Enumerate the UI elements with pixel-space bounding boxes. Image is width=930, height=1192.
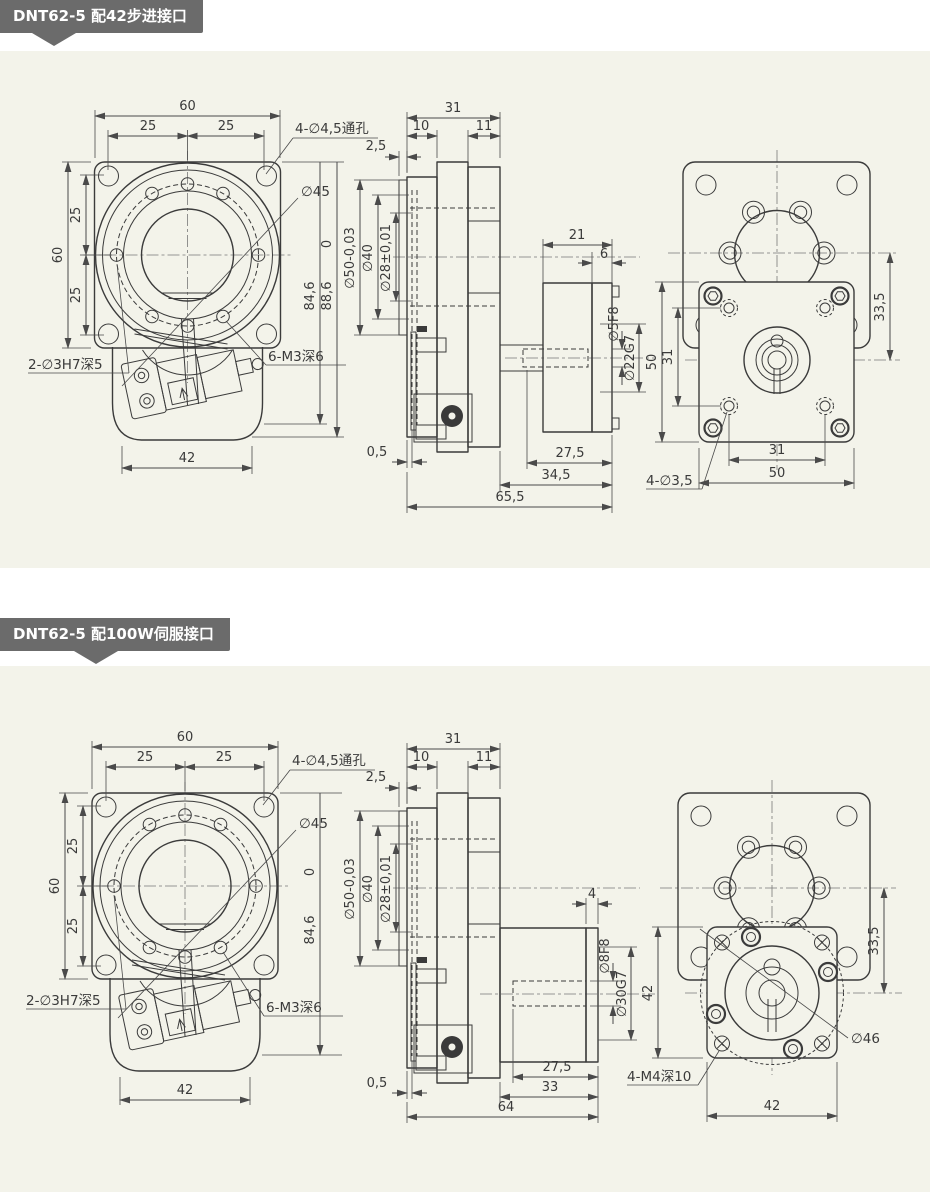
dim-front-width-left: 25 — [137, 750, 154, 765]
stepper-front-view: 60 25 25 60 25 25 42 0 84,6 88,6 4-∅4,5通… — [28, 99, 378, 474]
dim-ordinate-zero: 0 — [320, 240, 335, 248]
dim-shaft-diameter: ∅8F8 — [598, 938, 613, 973]
stepper-side-view: 31 10 11 2,5 ∅50-0,03 ∅40 ∅28±0,01 21 6 … — [343, 101, 655, 513]
dim-mid-diameter: ∅40 — [361, 244, 376, 272]
label-through-holes: 4-∅4,5通孔 — [295, 121, 369, 137]
stepper-drawing-panel: 60 25 25 60 25 25 42 0 84,6 88,6 4-∅4,5通… — [0, 51, 930, 568]
dim-plate-height: 42 — [641, 985, 656, 1002]
dim-motor-cap: 6 — [600, 247, 608, 262]
dim-pilot-diameter: ∅50-0,03 — [343, 858, 358, 920]
dim-ordinate-zero: 0 — [303, 868, 318, 876]
servo-drawing-panel: 60 25 25 60 25 25 42 0 84,6 4-∅4,5通孔 ∅45… — [0, 666, 930, 1192]
dim-spigot-diameter: ∅22G7 — [623, 335, 638, 381]
section-header-stepper: DNT62-5 配42步进接口 — [0, 0, 203, 33]
dim-plate-width: 50 — [769, 466, 786, 481]
servo-drawing: 60 25 25 60 25 25 42 0 84,6 4-∅4,5通孔 ∅45… — [0, 666, 930, 1192]
dim-side-width: 31 — [445, 732, 462, 747]
dim-side-block: 11 — [476, 119, 493, 134]
encoder-assembly — [411, 957, 472, 1073]
dim-length-b: 33 — [542, 1080, 559, 1095]
section-title: DNT62-5 配100W伺服接口 — [13, 625, 214, 643]
dim-side-flange: 10 — [413, 750, 430, 765]
dim-spigot-diameter: ∅30G7 — [615, 971, 630, 1017]
dim-bore-diameter: ∅28±0,01 — [379, 855, 394, 923]
label-motor-holes: 4-∅3,5 — [646, 473, 693, 489]
label-tapped-holes: 6-M3深6 — [268, 349, 324, 365]
dim-mid-diameter: ∅40 — [361, 875, 376, 903]
encoder-assembly — [411, 326, 472, 442]
dim-hole-pitch-v: 31 — [661, 349, 676, 366]
dim-front-bottom-width: 42 — [177, 1083, 194, 1098]
dim-side-lip-bottom: 0,5 — [367, 1076, 388, 1091]
dim-plate-height: 50 — [645, 354, 660, 371]
servo-rear-view: 33,5 42 42 4-M4深10 ∅46 — [627, 780, 902, 1122]
dim-side-lip: 2,5 — [366, 139, 387, 154]
dim-length-a: 27,5 — [556, 446, 585, 461]
label-pin-holes: 2-∅3H7深5 — [26, 993, 101, 1009]
servo-side-view: 31 10 11 2,5 ∅50-0,03 ∅40 ∅28±0,01 4 ∅8F… — [343, 732, 655, 1123]
label-race-diameter: ∅45 — [301, 184, 330, 200]
stepper-drawing: 60 25 25 60 25 25 42 0 84,6 88,6 4-∅4,5通… — [0, 51, 930, 568]
label-motor-screws: 4-M4深10 — [627, 1069, 691, 1085]
dim-front-bottom-width: 42 — [179, 451, 196, 466]
dim-bore-diameter: ∅28±0,01 — [379, 224, 394, 292]
dim-front-width: 60 — [179, 99, 196, 114]
dim-length-a: 27,5 — [543, 1060, 572, 1075]
stepper-rear-view: 33,5 50 31 31 50 4-∅3,5 — [645, 150, 900, 489]
dim-motor-length: 21 — [569, 228, 586, 243]
dim-front-height: 60 — [48, 878, 63, 895]
label-through-holes: 4-∅4,5通孔 — [292, 753, 366, 769]
dim-front-height-upper: 25 — [66, 838, 81, 855]
dim-cap-step: 4 — [588, 887, 596, 902]
dim-front-total-height-a: 84,6 — [303, 282, 318, 311]
dim-length-total: 64 — [498, 1100, 515, 1115]
dim-axis-offset: 33,5 — [867, 927, 882, 956]
dim-plate-width: 42 — [764, 1099, 781, 1114]
dim-front-height: 60 — [51, 247, 66, 264]
dim-front-width-left: 25 — [140, 119, 157, 134]
dim-hole-pitch-h: 31 — [769, 443, 786, 458]
dim-length-b: 34,5 — [542, 468, 571, 483]
dim-front-total-height: 84,6 — [303, 916, 318, 945]
section-title: DNT62-5 配42步进接口 — [13, 7, 187, 25]
dim-front-width-right: 25 — [216, 750, 233, 765]
servo-front-view: 60 25 25 60 25 25 42 0 84,6 4-∅4,5通孔 ∅45… — [26, 730, 375, 1105]
dim-side-lip-bottom: 0,5 — [367, 445, 388, 460]
label-pin-holes: 2-∅3H7深5 — [28, 357, 103, 373]
dim-front-width: 60 — [177, 730, 194, 745]
dim-front-height-lower: 25 — [66, 918, 81, 935]
dim-front-height-lower: 25 — [69, 287, 84, 304]
dim-front-width-right: 25 — [218, 119, 235, 134]
dim-pilot-diameter: ∅50-0,03 — [343, 227, 358, 289]
label-race-diameter: ∅45 — [299, 816, 328, 832]
dim-side-width: 31 — [445, 101, 462, 116]
dim-length-total: 65,5 — [496, 490, 525, 505]
dim-side-lip: 2,5 — [366, 770, 387, 785]
label-tapped-holes: 6-M3深6 — [266, 1000, 322, 1016]
dim-axis-offset: 33,5 — [873, 293, 888, 322]
label-bolt-circle: ∅46 — [851, 1031, 880, 1047]
dim-side-flange: 10 — [413, 119, 430, 134]
dim-side-block: 11 — [476, 750, 493, 765]
dim-front-total-height-b: 88,6 — [320, 282, 335, 311]
dim-front-height-upper: 25 — [69, 207, 84, 224]
section-header-servo: DNT62-5 配100W伺服接口 — [0, 618, 230, 651]
